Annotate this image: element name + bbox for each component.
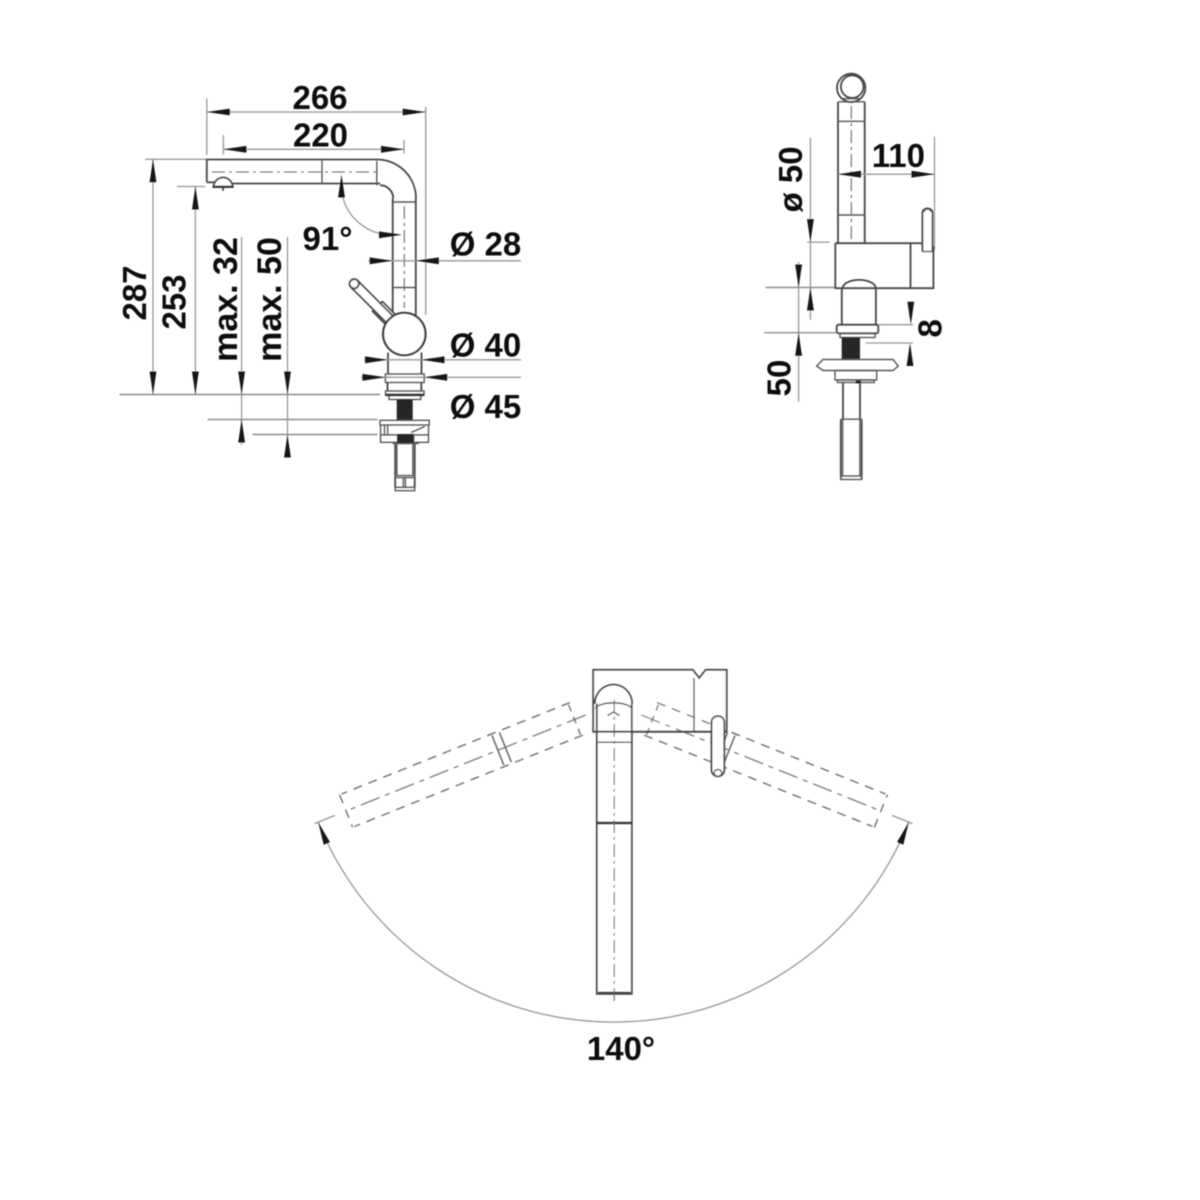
svg-text:253: 253 bbox=[156, 274, 193, 329]
svg-text:91°: 91° bbox=[303, 220, 353, 257]
svg-text:max. 50: max. 50 bbox=[251, 237, 289, 362]
svg-text:max. 32: max. 32 bbox=[207, 237, 245, 362]
svg-text:287: 287 bbox=[116, 265, 153, 320]
svg-text:ø 50: ø 50 bbox=[772, 146, 809, 212]
svg-text:Ø 40: Ø 40 bbox=[450, 327, 522, 364]
svg-text:Ø 28: Ø 28 bbox=[450, 226, 522, 263]
svg-text:220: 220 bbox=[293, 117, 348, 154]
svg-text:50: 50 bbox=[761, 360, 798, 397]
svg-text:Ø 45: Ø 45 bbox=[450, 388, 522, 425]
svg-text:8: 8 bbox=[912, 319, 949, 337]
svg-text:140°: 140° bbox=[587, 1030, 655, 1067]
svg-text:110: 110 bbox=[872, 137, 925, 174]
svg-text:266: 266 bbox=[292, 79, 347, 116]
